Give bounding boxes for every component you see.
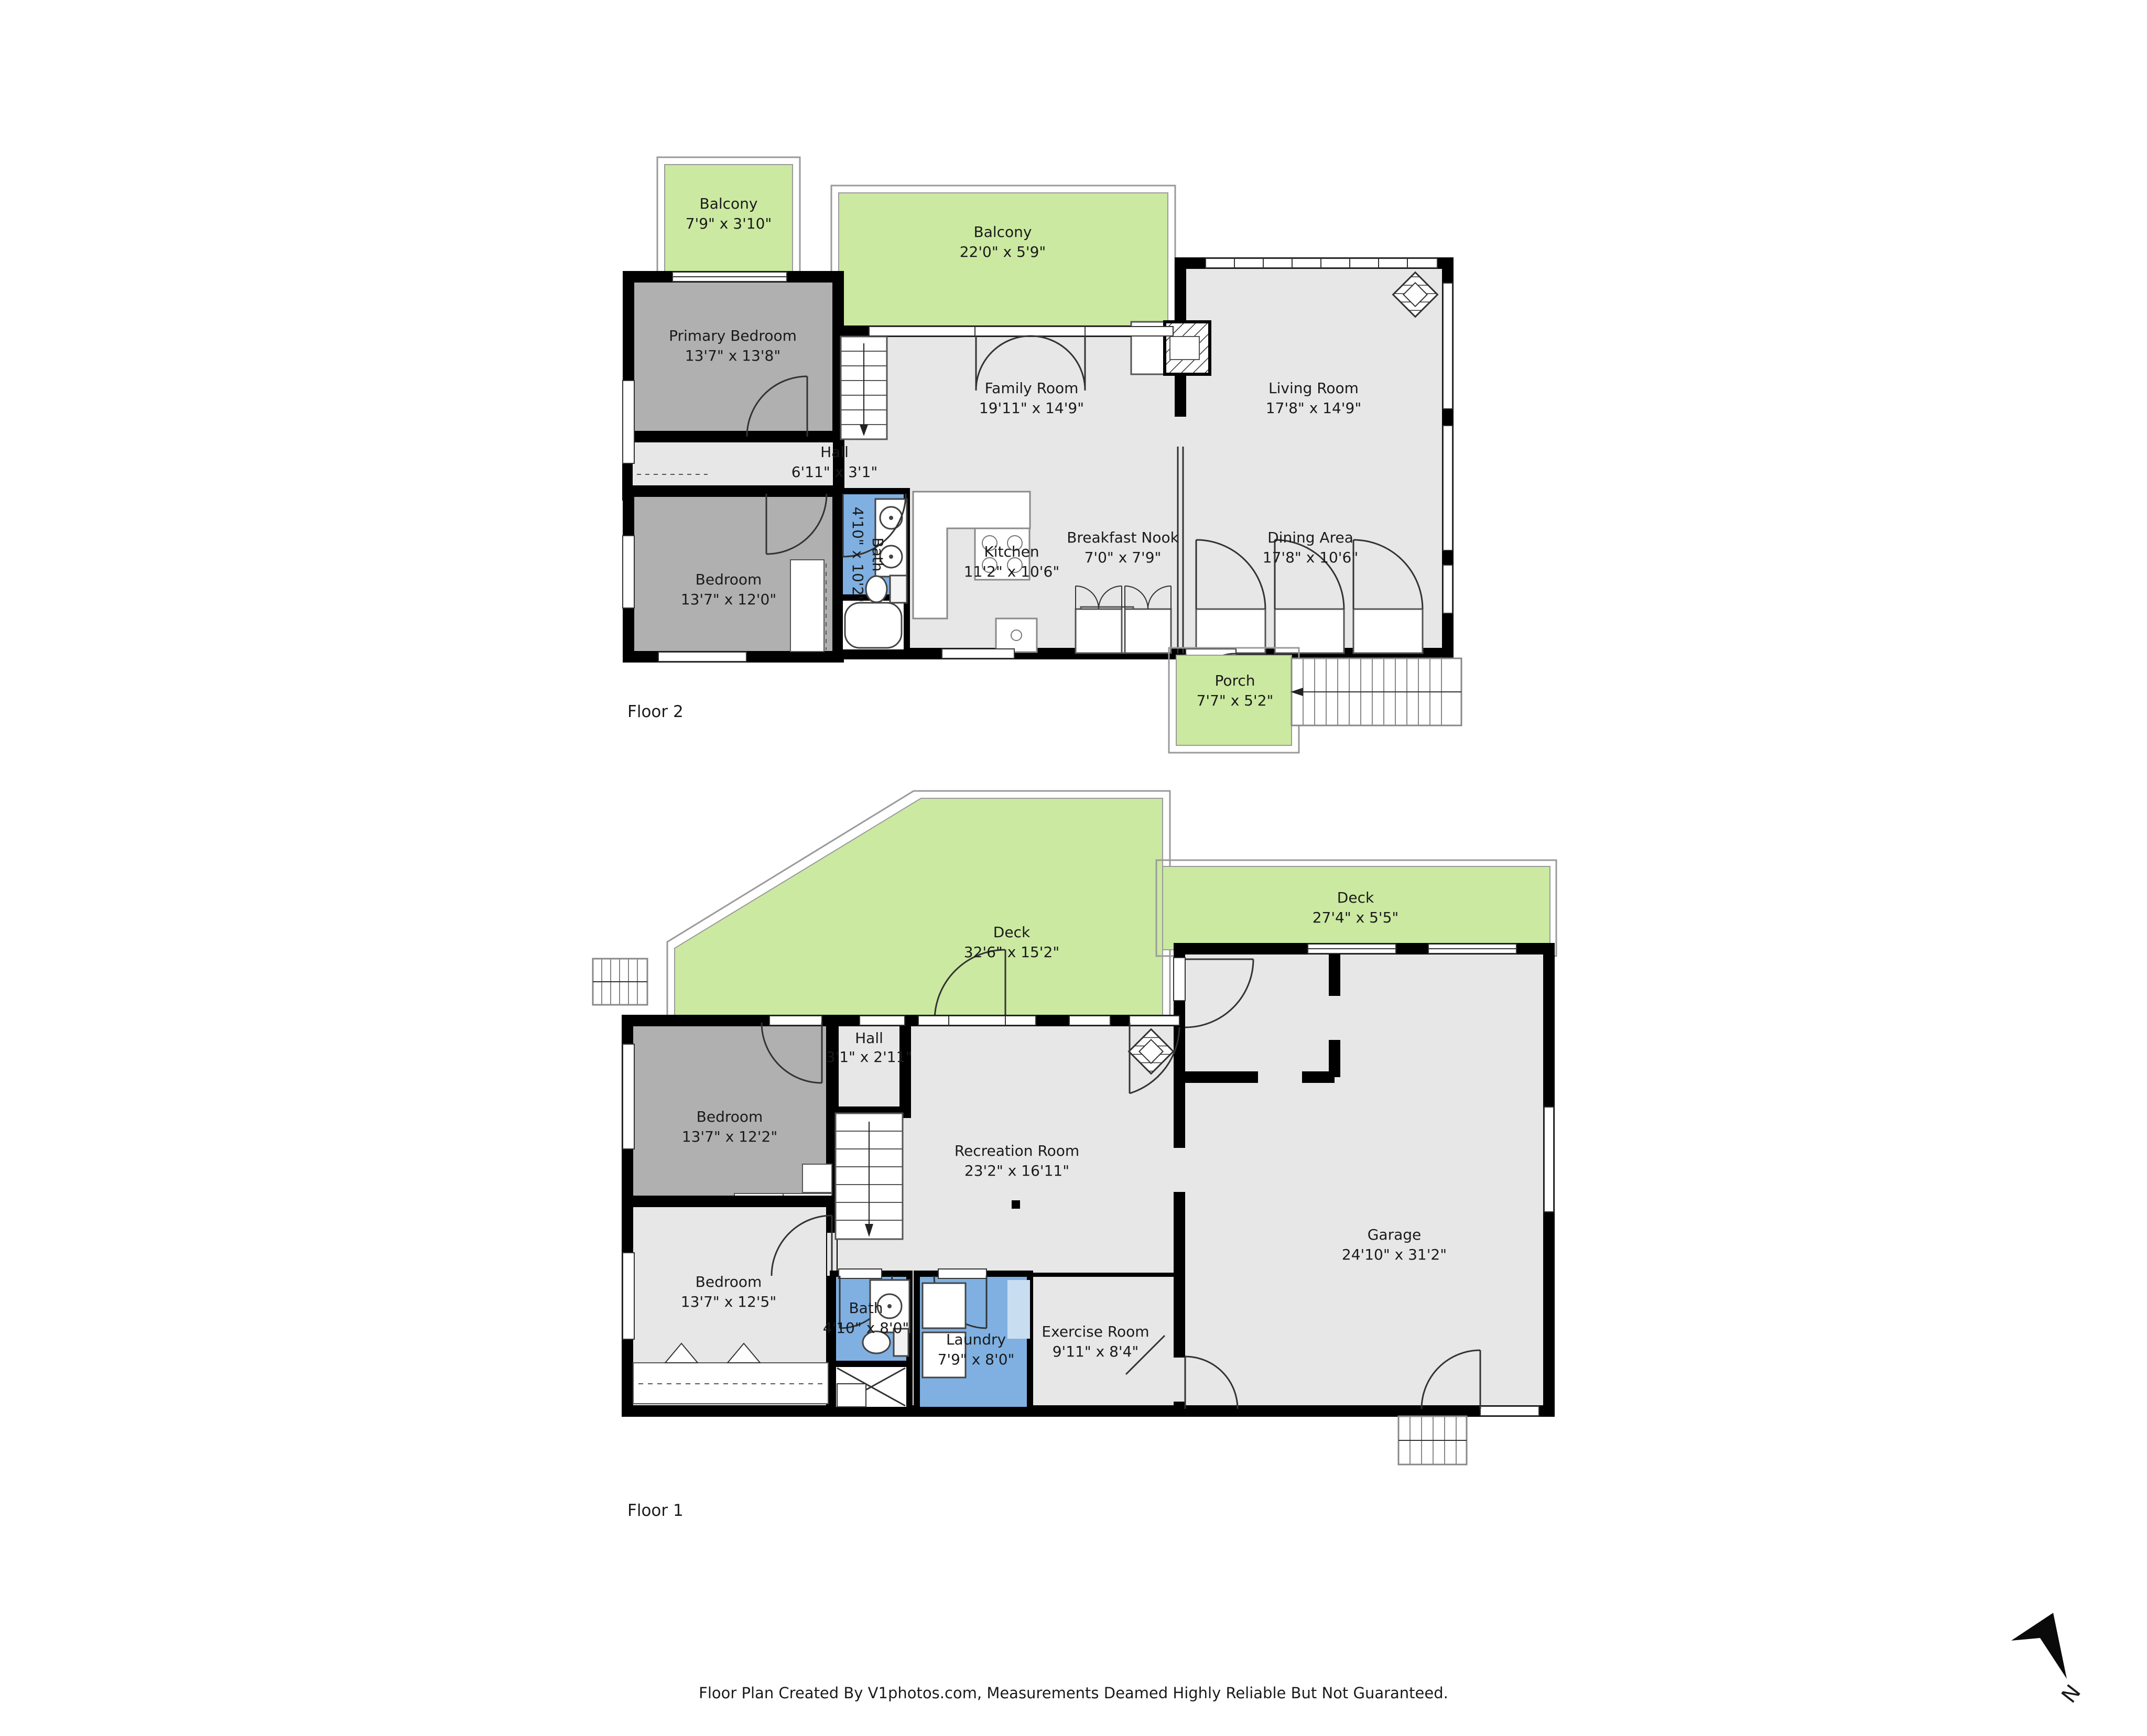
room-dims-exercise-room: 9'11" x 8'4" [1053,1343,1139,1360]
deck-main [667,791,1170,1028]
room-dims-deck-side: 27'4" x 5'5" [1313,909,1399,926]
room-label-garage: Garage [1368,1226,1422,1243]
room-dims-bedroom-floor2: 13'7" x 12'0" [681,591,776,608]
room-dims-bath-floor2: 4'10" x 10'2" [849,507,866,602]
room-label-hall-floor2: Hall [820,443,849,461]
washer-icon [923,1283,966,1328]
room-label-deck-main: Deck [993,924,1031,941]
room-label-bedroom-lower: Bedroom [696,1273,762,1290]
deck-side [1156,860,1556,956]
stairs-floor1 [836,1113,903,1239]
shower-icon [833,1364,909,1410]
room-label-primary-bedroom: Primary Bedroom [669,327,797,344]
room-dims-bedroom-lower: 13'7" x 12'5" [681,1293,776,1310]
room-dims-primary-bedroom: 13'7" x 13'8" [685,347,780,364]
room-dims-balcony-large: 22'0" x 5'9" [960,243,1046,261]
room-label-breakfast-nook: Breakfast Nook [1067,529,1179,546]
room-dims-bath-floor1: 4'10" x 8'0" [823,1319,909,1337]
room-dims-living-room: 17'8" x 14'9" [1266,399,1361,417]
room-dims-balcony-small: 7'9" x 3'10" [686,215,772,232]
floor1-plan: Deck 32'6" x 15'2" Deck 27'4" x 5'5" Hal… [593,791,1556,1520]
floor-plan-drawing: Balcony 7'9" x 3'10" Balcony 22'0" x 5'9… [0,0,2147,1736]
room-dims-deck-main: 32'6" x 15'2" [964,943,1059,961]
floor2-title: Floor 2 [627,702,684,721]
room-label-dining-area: Dining Area [1267,529,1353,546]
stairs-floor2 [841,337,887,439]
room-label-laundry: Laundry [946,1331,1006,1348]
bathtub-icon [845,603,902,648]
room-dims-porch: 7'7" x 5'2" [1197,692,1274,709]
room-label-bath-floor1: Bath [849,1299,883,1317]
room-dims-hall-floor2: 6'11" x 3'1" [791,463,878,481]
porch-stairs [1291,658,1461,725]
north-arrow-icon: N [2011,1613,2086,1708]
room-label-recreation-room: Recreation Room [955,1142,1079,1159]
room-label-family-room: Family Room [985,379,1079,397]
floor2-plan: Balcony 7'9" x 3'10" Balcony 22'0" x 5'9… [623,157,1461,753]
floor1-title: Floor 1 [627,1501,684,1520]
room-dims-breakfast-nook: 7'0" x 7'9" [1085,549,1162,566]
rec-room-post [1012,1200,1020,1209]
footer-disclaimer: Floor Plan Created By V1photos.com, Meas… [699,1684,1448,1702]
room-label-bath-floor2: Bath [869,537,886,571]
room-label-porch: Porch [1215,672,1255,689]
room-label-hall-floor1: Hall [855,1029,883,1047]
room-dims-dining-area: 17'8" x 10'6" [1263,549,1358,566]
room-label-bedroom-upper: Bedroom [697,1108,763,1125]
balcony-large [831,186,1175,338]
room-label-bedroom-floor2: Bedroom [696,571,762,588]
room-dims-family-room: 19'11" x 14'9" [979,399,1084,417]
room-dims-garage: 24'10" x 31'2" [1342,1246,1447,1263]
north-label: N [2057,1680,2086,1708]
garage-stairs [1398,1416,1467,1464]
kitchen-sink-icon [996,619,1037,652]
room-dims-recreation-room: 23'2" x 16'11" [964,1162,1069,1179]
room-label-balcony-large: Balcony [974,223,1032,241]
room-label-deck-side: Deck [1337,889,1374,906]
bath-floor1 [833,1269,909,1410]
deck-stairs-left [593,959,647,1005]
room-label-living-room: Living Room [1268,379,1359,397]
room-dims-hall-floor1: 3'1" x 2'11" [826,1048,913,1066]
room-dims-laundry: 7'9" x 8'0" [938,1351,1015,1368]
room-label-balcony-small: Balcony [700,195,758,212]
room-dims-kitchen: 11'2" x 10'6" [964,563,1059,580]
room-label-kitchen: Kitchen [984,543,1039,560]
room-label-exercise-room: Exercise Room [1042,1323,1149,1340]
room-dims-bedroom-upper: 13'7" x 12'2" [682,1128,777,1145]
